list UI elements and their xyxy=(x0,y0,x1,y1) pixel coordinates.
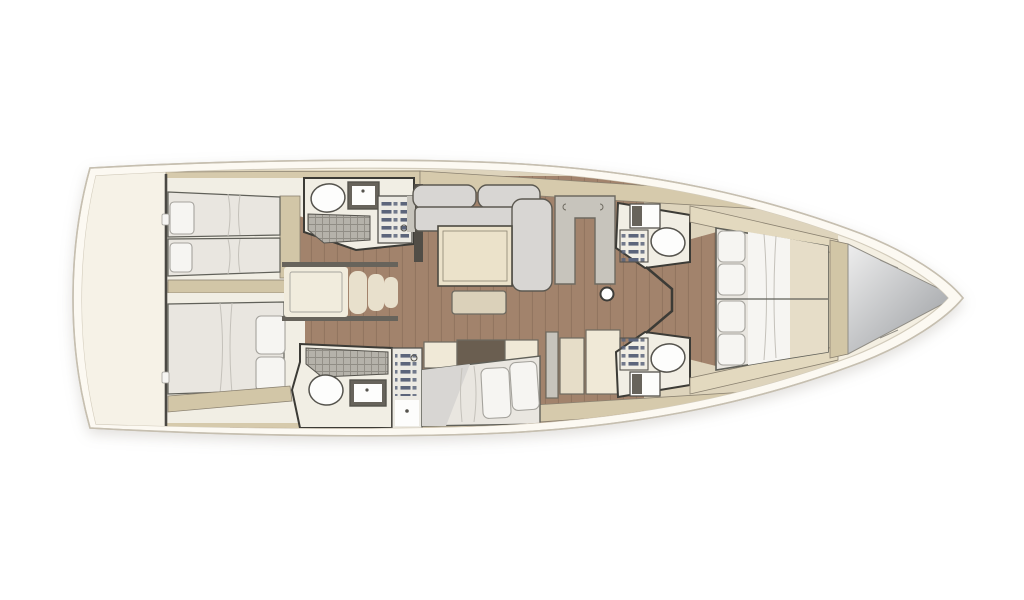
sink xyxy=(348,182,379,209)
yacht-floor-plan xyxy=(0,0,1024,600)
shower xyxy=(620,338,648,370)
shower-tray xyxy=(306,348,388,377)
fwd-head-port xyxy=(616,203,690,268)
stern-platform xyxy=(80,170,166,432)
interior xyxy=(80,170,956,438)
sofa-corner-seat xyxy=(512,199,552,291)
shower xyxy=(620,230,648,262)
salon-table xyxy=(438,226,512,286)
stair-landing xyxy=(284,267,348,317)
pillows xyxy=(481,361,540,419)
cabin-shelf xyxy=(168,280,304,293)
galley-unit xyxy=(378,196,412,243)
mast-post xyxy=(601,288,614,301)
fwd-head-starboard xyxy=(616,332,690,397)
salon-bench xyxy=(452,291,506,314)
pillows xyxy=(256,316,285,391)
galley-unit xyxy=(392,348,422,432)
stair-steps xyxy=(349,271,398,314)
sink xyxy=(350,380,386,406)
aft-head-starboard xyxy=(292,344,422,432)
starboard-cabinets xyxy=(546,330,620,398)
floor-plan-canvas xyxy=(0,0,1024,600)
